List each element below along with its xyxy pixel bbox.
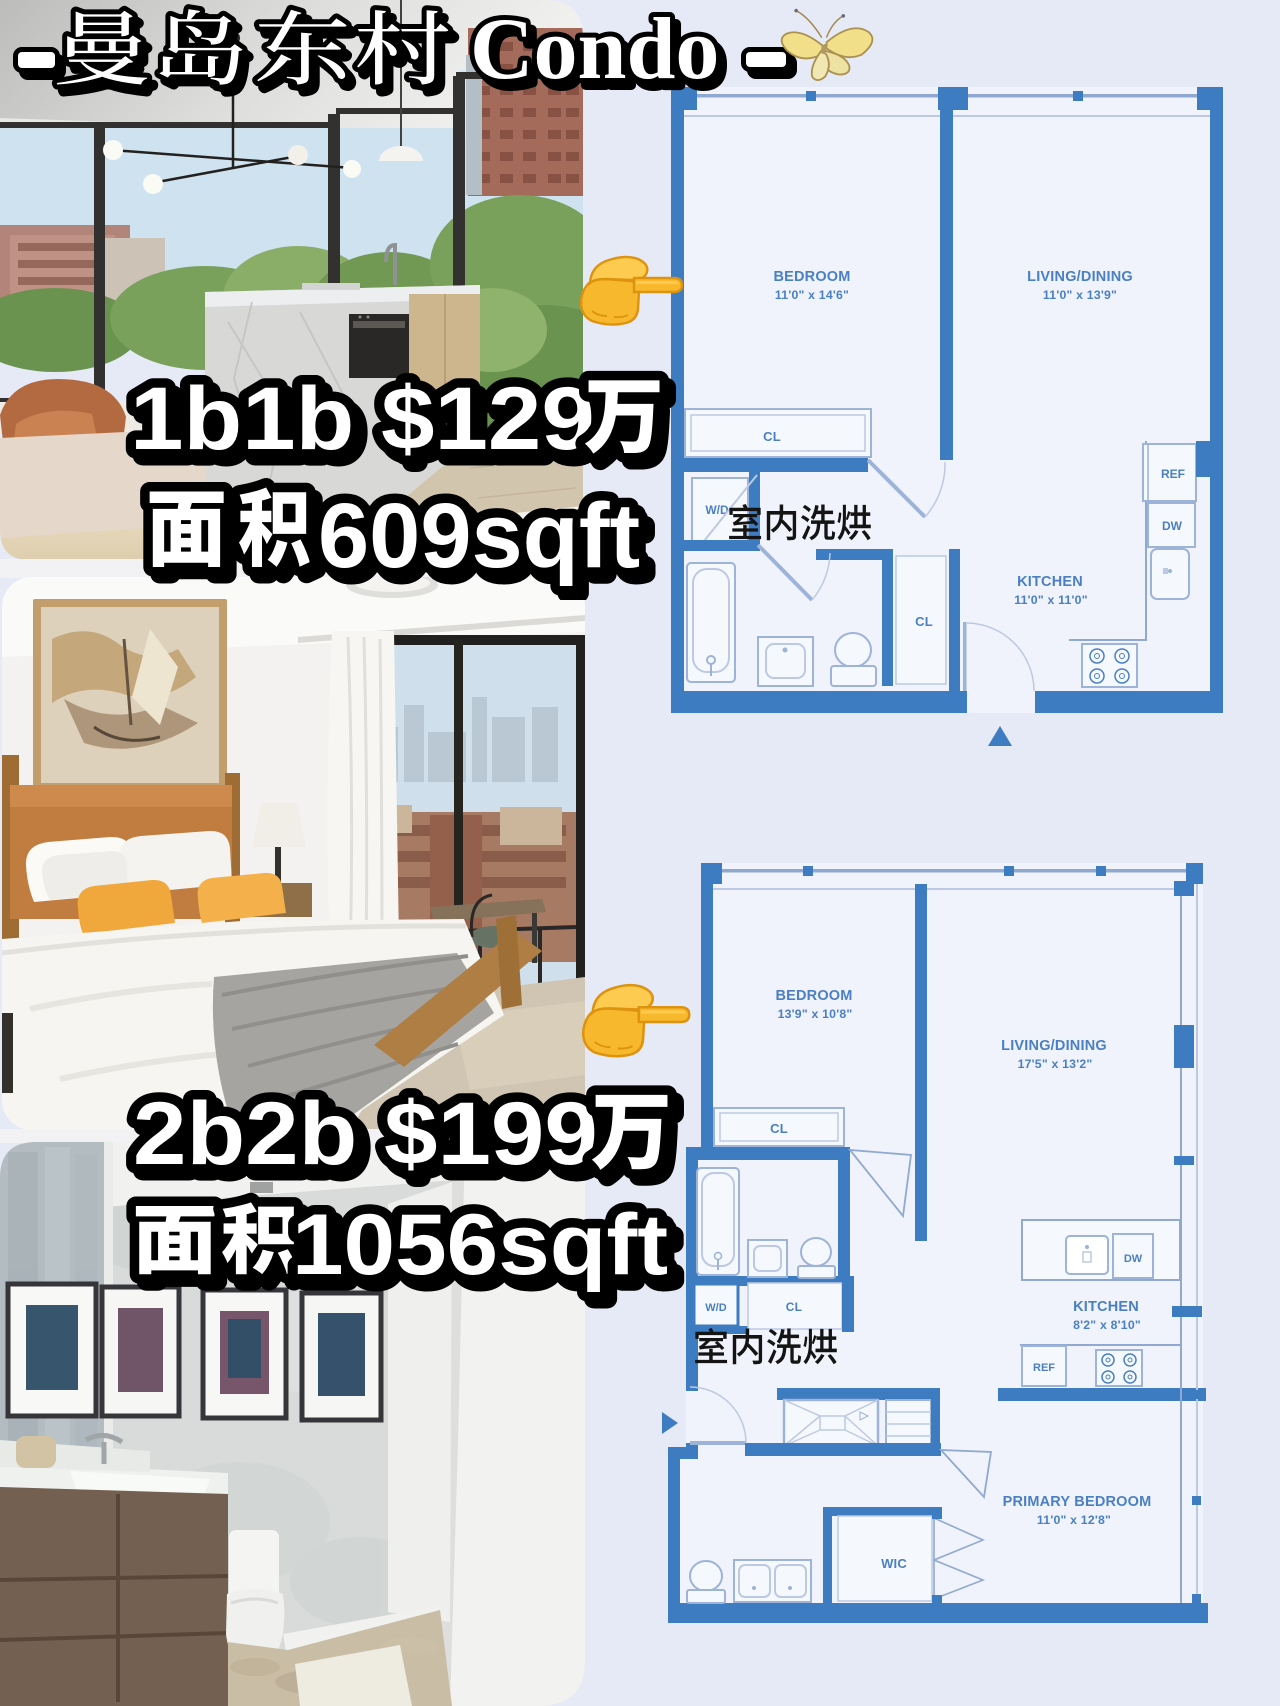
svg-text:CL: CL xyxy=(763,429,781,444)
svg-text:11'0" x 12'8": 11'0" x 12'8" xyxy=(1037,1513,1111,1527)
svg-text:1056sqft: 1056sqft xyxy=(292,1196,668,1292)
svg-text:LIVING/DINING: LIVING/DINING xyxy=(1001,1038,1107,1054)
svg-text:11'0" x 14'6": 11'0" x 14'6" xyxy=(775,288,849,302)
svg-text:REF: REF xyxy=(1033,1362,1055,1374)
svg-text:KITCHEN: KITCHEN xyxy=(1073,1299,1139,1315)
svg-text:LIVING/DINING: LIVING/DINING xyxy=(1027,269,1133,285)
svg-text:KITCHEN: KITCHEN xyxy=(1017,574,1083,590)
svg-text:CL: CL xyxy=(770,1121,788,1136)
svg-text:PRIMARY BEDROOM: PRIMARY BEDROOM xyxy=(1003,1494,1152,1510)
svg-text:8'2" x 8'10": 8'2" x 8'10" xyxy=(1073,1318,1141,1332)
svg-text:REF: REF xyxy=(1161,467,1185,481)
svg-text:Condo: Condo xyxy=(470,1,719,98)
svg-text:CL: CL xyxy=(915,614,933,629)
svg-text:11'0" x 13'9": 11'0" x 13'9" xyxy=(1043,288,1117,302)
svg-text:BEDROOM: BEDROOM xyxy=(773,269,850,285)
svg-text:2b2b $199: 2b2b $199 xyxy=(133,1083,598,1183)
svg-text:1b1b $129: 1b1b $129 xyxy=(130,368,595,468)
svg-text:WIC: WIC xyxy=(881,1556,907,1571)
svg-text:609sqft: 609sqft xyxy=(318,485,640,587)
svg-text:CL: CL xyxy=(786,1300,802,1314)
svg-text:DW: DW xyxy=(1124,1253,1143,1265)
svg-text:13'9" x 10'8": 13'9" x 10'8" xyxy=(778,1007,853,1021)
svg-text:BEDROOM: BEDROOM xyxy=(775,988,852,1004)
svg-text:11'0" x 11'0": 11'0" x 11'0" xyxy=(1014,593,1087,607)
svg-text:17'5" x 13'2": 17'5" x 13'2" xyxy=(1018,1057,1093,1071)
svg-text:DW: DW xyxy=(1162,519,1183,533)
